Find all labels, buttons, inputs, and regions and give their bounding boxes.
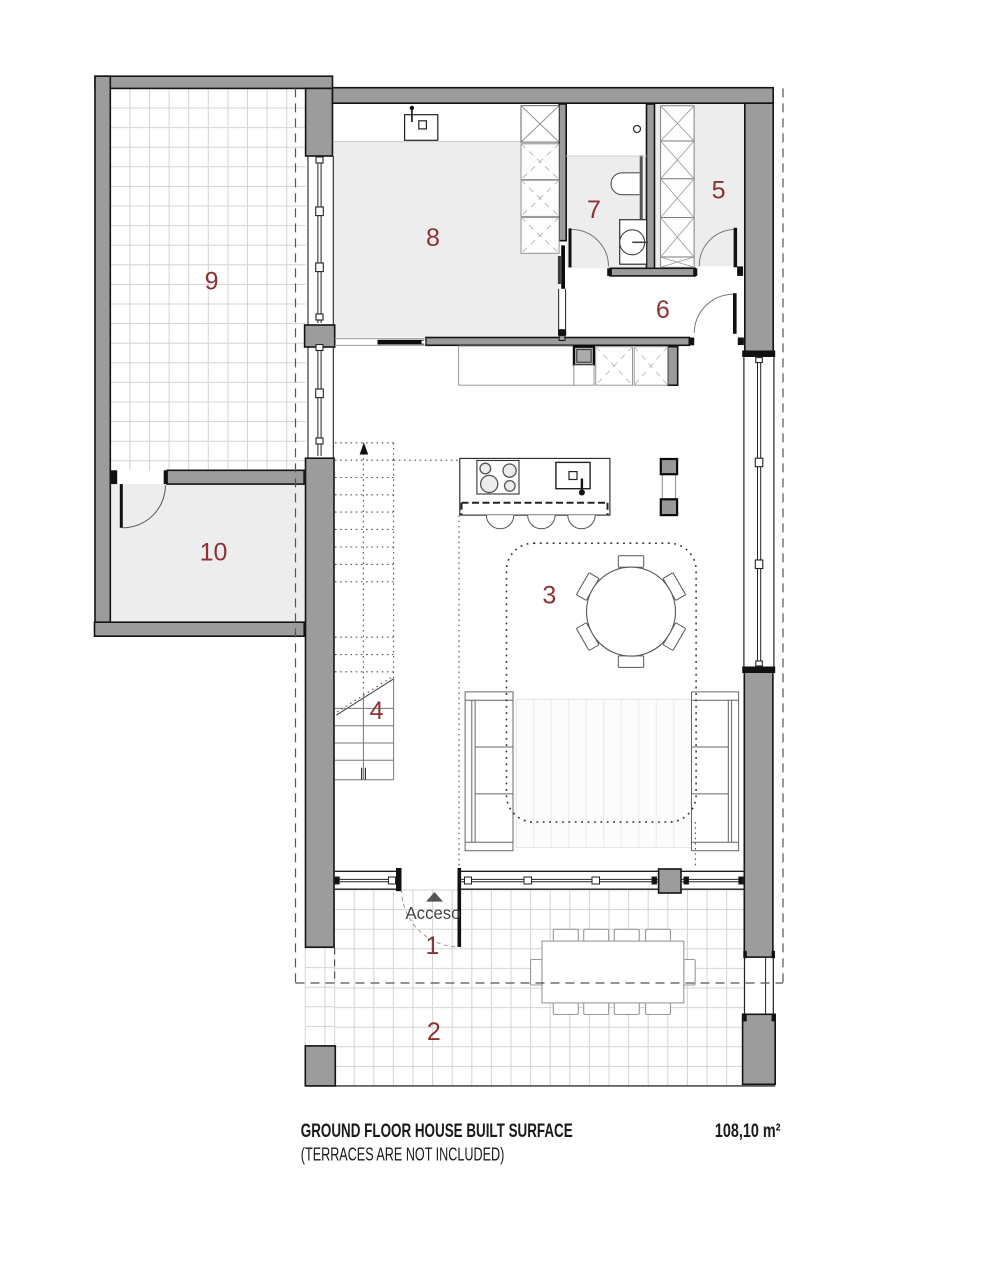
svg-text:7: 7: [587, 196, 601, 224]
svg-text:(TERRACES ARE NOT INCLUDED): (TERRACES ARE NOT INCLUDED): [301, 1144, 505, 1165]
svg-text:Acceso: Acceso: [406, 903, 461, 923]
svg-text:3: 3: [542, 582, 556, 610]
svg-text:4: 4: [370, 697, 384, 725]
svg-text:8: 8: [426, 224, 440, 252]
svg-text:108,10 m²: 108,10 m²: [715, 1120, 781, 1142]
svg-text:GROUND FLOOR HOUSE BUILT SURFA: GROUND FLOOR HOUSE BUILT SURFACE: [301, 1120, 573, 1142]
svg-text:10: 10: [200, 539, 228, 567]
svg-text:2: 2: [427, 1018, 441, 1046]
svg-text:5: 5: [712, 177, 726, 205]
svg-text:1: 1: [426, 932, 440, 960]
svg-text:9: 9: [205, 267, 219, 295]
svg-text:6: 6: [656, 296, 670, 324]
